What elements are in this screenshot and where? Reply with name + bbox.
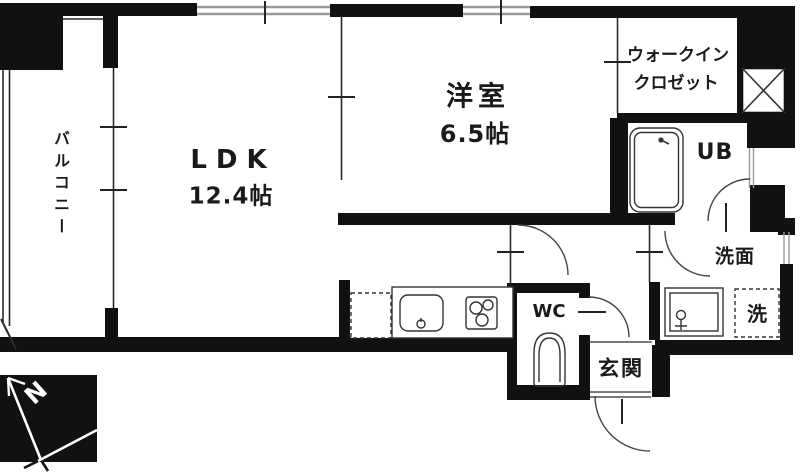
- walk-in-closet-label-line1: ウォークイン: [627, 48, 729, 65]
- apartment-floorplan: バルコニー LDK 12.4帖 洋室 6.5帖 ウォークイン クロゼット UB …: [0, 0, 800, 474]
- western-room-size-label: 6.5帖: [440, 122, 511, 146]
- western-room-label: 洋室: [446, 84, 510, 111]
- balcony-label: バルコニー: [52, 130, 68, 240]
- compass: [0, 375, 97, 471]
- hall-door-arc: [518, 225, 568, 275]
- ldk-size-label: 12.4帖: [189, 186, 274, 209]
- unit-bath-label: UB: [697, 142, 734, 164]
- shaft-x-box: [742, 68, 785, 113]
- floorplan-drawing: [0, 0, 800, 474]
- entrance-label: 玄関: [598, 359, 644, 380]
- ldk-label: LDK: [190, 147, 275, 173]
- washroom-door-arc: [665, 231, 710, 276]
- toilet-label: WC: [532, 303, 565, 321]
- bathtub-icon: [630, 128, 683, 212]
- refrigerator-space: [351, 293, 391, 338]
- washbasin-icon: [665, 288, 723, 336]
- washroom-label: 洗面: [715, 248, 755, 267]
- washer-space-label: 洗: [747, 304, 767, 324]
- wc-door-arc: [589, 297, 629, 337]
- unit-bath-door-arc: [708, 179, 750, 221]
- walk-in-closet-label-line2: クロゼット: [634, 76, 719, 93]
